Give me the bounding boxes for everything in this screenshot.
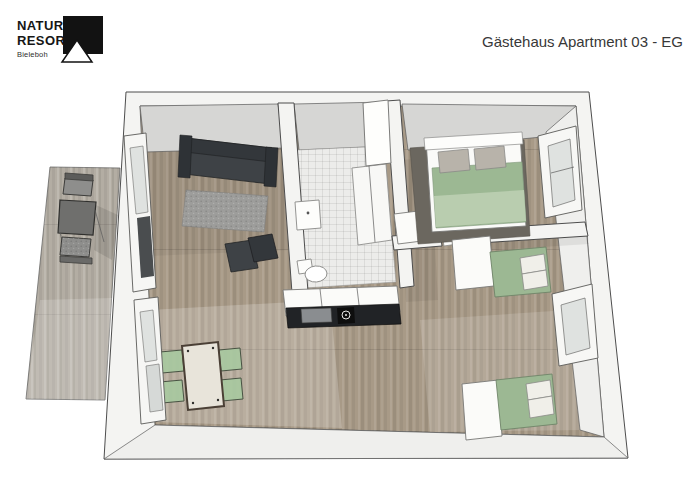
wardrobe-bottom: [462, 380, 502, 440]
kitchen: [283, 286, 401, 328]
terrace: [26, 167, 120, 400]
terrace-light-patch: [26, 298, 112, 400]
single-bed-bottom-pillows: [526, 380, 554, 418]
terrace-chair-top: [63, 173, 93, 196]
bedroom2-window: [552, 284, 598, 366]
living-rug-texture: [182, 190, 268, 232]
wardrobe-top: [452, 236, 494, 290]
bathroom-sink: [295, 200, 321, 230]
logo-text-line1: NATUR: [17, 18, 64, 33]
bedroom1-window: [538, 126, 582, 218]
kitchen-sink: [301, 308, 332, 323]
floorplan-page: NATUR RESORT Bieleboh Gästehaus Apartmen…: [0, 0, 700, 500]
entrance-door: [363, 100, 391, 166]
terrace-chair-bottom: [60, 237, 92, 264]
single-bed-bottom: [496, 374, 557, 430]
double-bed-duvet-fold: [434, 190, 526, 227]
cooktop: [337, 307, 355, 324]
logo-subtitle: Bieleboh: [17, 50, 48, 59]
logo-mark: [62, 16, 103, 62]
double-bed: [424, 132, 526, 232]
single-bed-top-pillows: [520, 254, 548, 290]
header: NATUR RESORT Bieleboh Gästehaus Apartmen…: [17, 16, 683, 62]
single-bed-top: [490, 247, 551, 297]
dining-table: [182, 342, 224, 410]
page-title: Gästehaus Apartment 03 - EG: [482, 33, 683, 50]
floorplan-canvas: NATUR RESORT Bieleboh Gästehaus Apartmen…: [0, 0, 700, 500]
bedroom-1: [410, 132, 530, 244]
